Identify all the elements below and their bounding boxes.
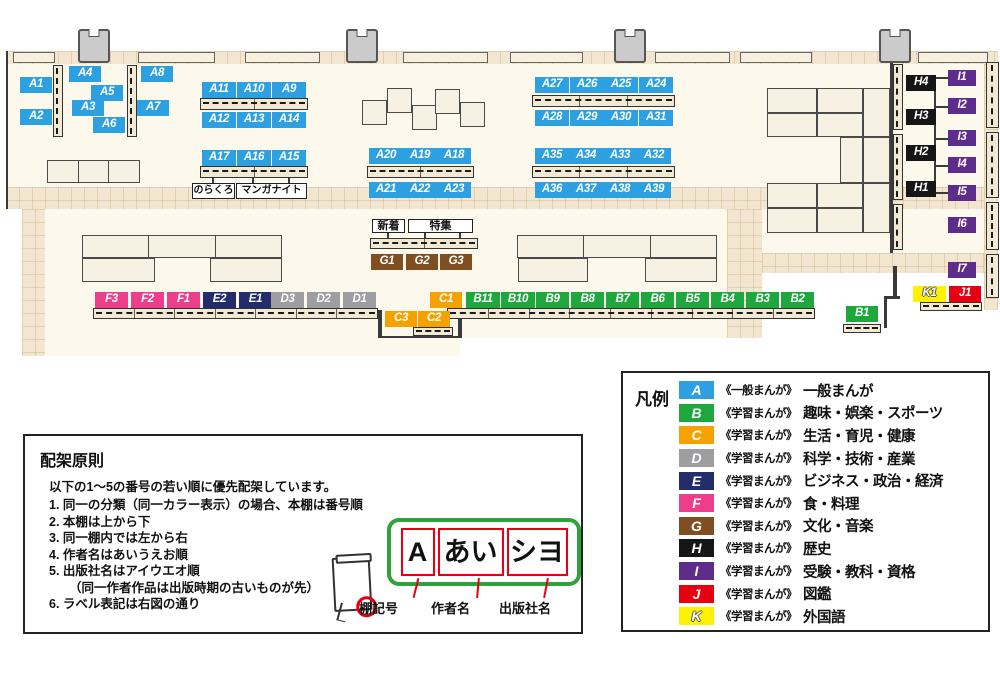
shelf-label-F1: F1 [167,292,200,308]
shelf-label-B9: B9 [536,292,569,308]
bookshelf [532,95,675,107]
manga-corner-floor-map-page: のらくろマンガナイト新着特集A1A2A4A5A3A6A8A7A11A10A9A1… [0,0,1000,700]
bookshelf [920,302,982,311]
legend-series: 《学習まんが》 [720,473,797,489]
pillar [614,29,646,63]
shelving-principles-box: 配架原則 以下の1～5の番号の若い順に優先配架しています。 1. 同一の分類（同… [23,434,583,634]
shelf-label-G2: G2 [406,254,438,270]
shelf-label-A33: A33 [603,148,637,164]
display-table [518,258,588,282]
legend-chip-H: H [679,539,714,557]
display-table [840,137,863,183]
wall [936,165,948,167]
shelf-label-A32: A32 [637,148,671,164]
legend-chip-J: J [679,585,714,603]
legend-category: 受験・教科・資格 [803,561,915,582]
shelf-label-C1: C1 [430,292,462,308]
bookshelf [893,134,903,200]
display-table [517,235,717,258]
bookshelf [893,204,903,250]
wall-shelf [510,52,583,63]
shelf-label-H4: H4 [906,75,936,91]
shelf-label-A26: A26 [570,77,604,93]
floor-area [45,338,460,356]
shelf-label-B6: B6 [641,292,674,308]
shelf-label-A7: A7 [137,100,169,116]
shelf-label-C2: C2 [418,311,450,327]
shelf-label-A5: A5 [91,85,123,101]
legend-category: 図鑑 [803,583,831,604]
legend-category: 科学・技術・産業 [803,448,915,469]
bookshelf [367,166,474,178]
shelf-label-A37: A37 [569,182,603,198]
shelf-label-B5: B5 [676,292,709,308]
display-table [387,88,412,113]
shelf-label-A36: A36 [535,182,569,198]
shelf-label-A35: A35 [535,148,569,164]
wall [936,77,948,79]
bookshelf [986,62,999,128]
pointer-line [476,578,480,598]
pillar [346,29,378,63]
legend-rows: A《一般まんが》一般まんがB《学習まんが》趣味・娯楽・スポーツC《学習まんが》生… [679,379,984,628]
shelf-label-A12: A12 [202,112,236,128]
shelf-label-A18: A18 [437,148,471,164]
shelf-label-F2: F2 [131,292,164,308]
legend-category: 歴史 [803,538,831,559]
bookshelf [370,238,478,249]
shelf-label-A8: A8 [141,66,173,82]
shelf-label-A9: A9 [272,82,306,98]
shelf-label-A16: A16 [237,150,271,166]
shelf-label-A25: A25 [604,77,638,93]
display-table [817,88,863,113]
shelf-label-I6: I6 [948,217,976,233]
wall [934,83,936,189]
shelf-label-A30: A30 [604,110,638,126]
shelf-label-A24: A24 [639,77,673,93]
shelf-label-H3: H3 [906,109,936,125]
shelf-label-A2: A2 [20,109,52,125]
shelf-label-B3: B3 [746,292,779,308]
shelf-label-E1: E1 [239,292,272,308]
display-table [460,102,485,127]
wall-shelf [740,52,812,63]
shelf-label-A29: A29 [570,110,604,126]
bookshelf [53,65,63,137]
shelf-label-A19: A19 [403,148,437,164]
shelf-label-A11: A11 [202,82,236,98]
bookshelf [893,64,903,130]
legend-series: 《学習まんが》 [720,405,797,421]
legend-chip-E: E [679,472,714,490]
display-table [362,100,387,125]
wall [380,336,462,338]
shelf-label-B11: B11 [466,292,500,308]
shelf-label-A20: A20 [369,148,403,164]
shelf-label-G3: G3 [440,254,472,270]
shelf-label-C3: C3 [385,311,417,327]
legend-category: ビジネス・政治・経済 [803,470,943,491]
shelf-label-D2: D2 [307,292,340,308]
bookshelf [447,308,815,319]
shelf-label-D3: D3 [271,292,304,308]
legend-row-F: F《学習まんが》食・料理 [679,492,984,515]
shelf-label-D1: D1 [343,292,376,308]
bookmark-ribbon-icon [336,603,349,623]
wall-shelf [138,52,215,63]
wall-shelf [918,52,988,63]
shelf-label-I5: I5 [948,185,976,201]
wall [378,310,382,338]
legend-chip-B: B [679,404,714,422]
label-example-diagram: A あい シヨ 棚記号 作者名 出版社名 [25,436,581,632]
publisher-caption: 出版社名 [499,598,551,617]
sign-manga-night: マンガナイト [236,183,307,199]
legend-category: 一般まんが [803,380,873,401]
legend-category: 生活・育児・健康 [803,425,915,446]
shelf-label-A3: A3 [72,100,104,116]
shelf-label-A27: A27 [535,77,569,93]
shelf-label-F3: F3 [95,292,128,308]
display-table [863,137,890,183]
sign-norakuro: のらくろ [192,183,235,199]
wall [884,296,887,328]
shelf-label-H2: H2 [906,145,936,161]
legend-row-A: A《一般まんが》一般まんが [679,379,984,402]
display-table [817,183,863,208]
shelf-label-A4: A4 [69,66,101,82]
shelf-label-J1: J1 [949,286,981,302]
label-publisher: シヨ [507,528,568,576]
legend-chip-A: A [679,381,714,399]
legend-row-E: E《学習まんが》ビジネス・政治・経済 [679,469,984,492]
shelf-label-A15: A15 [272,150,306,166]
legend-row-B: B《学習まんが》趣味・娯楽・スポーツ [679,402,984,425]
legend-category: 食・料理 [803,493,859,514]
shelf-label-I7: I7 [948,262,976,278]
wall-shelf [655,52,730,63]
shelf-label-A34: A34 [569,148,603,164]
shelf-code-caption: 棚記号 [359,598,398,617]
wall [893,266,897,296]
display-table [767,88,817,113]
display-table [82,258,155,282]
sign-special-feature: 特集 [408,219,473,233]
walkway [22,209,45,356]
legend-series: 《学習まんが》 [720,563,797,579]
shelf-label-A10: A10 [237,82,271,98]
bookshelf [532,166,675,178]
shelf-label-A17: A17 [202,150,236,166]
legend-row-H: H《学習まんが》歴史 [679,537,984,560]
shelf-label-H1: H1 [906,181,936,197]
display-table [767,183,817,208]
legend-chip-G: G [679,517,714,535]
label-author: あい [438,528,504,576]
shelf-label-I3: I3 [948,130,976,146]
legend-series: 《一般まんが》 [720,382,797,398]
legend-row-D: D《学習まんが》科学・技術・産業 [679,447,984,470]
shelf-label-B8: B8 [571,292,604,308]
shelf-label-A39: A39 [637,182,671,198]
display-table [817,113,863,137]
legend-chip-K: K [679,607,714,625]
wall [936,192,948,194]
display-table [412,105,437,130]
author-caption: 作者名 [431,598,470,617]
display-table [817,208,863,233]
display-table [435,89,460,114]
display-table [863,88,890,137]
bookshelf [200,166,308,178]
legend-row-I: I《学習まんが》受験・教科・資格 [679,560,984,583]
bookshelf [200,98,308,110]
wall-shelf [245,52,320,63]
display-table [82,235,282,258]
display-table [863,183,890,233]
shelf-label-I1: I1 [948,70,976,86]
wall-shelf [403,52,488,63]
shelf-label-A23: A23 [437,182,471,198]
shelf-label-B10: B10 [501,292,535,308]
legend-row-G: G《学習まんが》文化・音楽 [679,515,984,538]
sign-new-arrivals: 新着 [372,219,405,233]
bookshelf [93,308,378,319]
legend-category: 文化・音楽 [803,515,873,536]
label-shelf-code: A [401,528,435,576]
display-table [767,113,817,137]
shelf-label-E2: E2 [203,292,236,308]
legend-series: 《学習まんが》 [720,495,797,511]
shelf-label-I2: I2 [948,98,976,114]
pillar [78,29,110,63]
legend-series: 《学習まんが》 [720,586,797,602]
shelf-label-B4: B4 [711,292,744,308]
legend-series: 《学習まんが》 [720,427,797,443]
wall [936,138,948,140]
display-table [645,258,717,282]
shelf-label-A22: A22 [403,182,437,198]
bookshelf [413,327,453,336]
wall [6,51,8,209]
shelf-label-B2: B2 [781,292,814,308]
legend-category: 外国語 [803,606,845,627]
shelf-label-A6: A6 [93,117,125,133]
legend-chip-I: I [679,562,714,580]
legend-series: 《学習まんが》 [720,450,797,466]
display-table [767,208,817,233]
shelf-label-G1: G1 [371,254,403,270]
legend-title: 凡例 [635,385,669,410]
display-table [210,258,282,282]
shelf-label-A14: A14 [272,112,306,128]
pillar [879,29,911,63]
bookshelf [986,254,999,298]
display-table [47,160,140,183]
wall-shelf [13,52,55,63]
legend-row-C: C《学習まんが》生活・育児・健康 [679,424,984,447]
legend-chip-F: F [679,494,714,512]
shelf-label-A13: A13 [237,112,271,128]
label-example: A あい シヨ [387,518,581,586]
wall [936,106,948,108]
shelf-label-A1: A1 [20,77,52,93]
bookshelf [986,202,999,250]
bookshelf [127,65,137,137]
legend-series: 《学習まんが》 [720,518,797,534]
legend-row-J: J《学習まんが》図鑑 [679,582,984,605]
legend-chip-C: C [679,426,714,444]
shelf-label-A38: A38 [603,182,637,198]
shelf-label-A31: A31 [639,110,673,126]
shelf-label-I4: I4 [948,157,976,173]
legend-series: 《学習まんが》 [720,608,797,624]
bookshelf [843,324,881,333]
legend-series: 《学習まんが》 [720,540,797,556]
legend-chip-D: D [679,449,714,467]
shelf-label-A28: A28 [535,110,569,126]
shelf-label-K1: K1 [913,286,946,302]
shelf-label-A21: A21 [369,182,403,198]
bookshelf [986,132,999,198]
shelf-label-B1: B1 [846,306,878,322]
legend-row-K: K《学習まんが》外国語 [679,605,984,628]
legend-box: 凡例 A《一般まんが》一般まんがB《学習まんが》趣味・娯楽・スポーツC《学習まん… [621,371,990,632]
shelf-label-B7: B7 [606,292,639,308]
legend-category: 趣味・娯楽・スポーツ [803,402,943,423]
